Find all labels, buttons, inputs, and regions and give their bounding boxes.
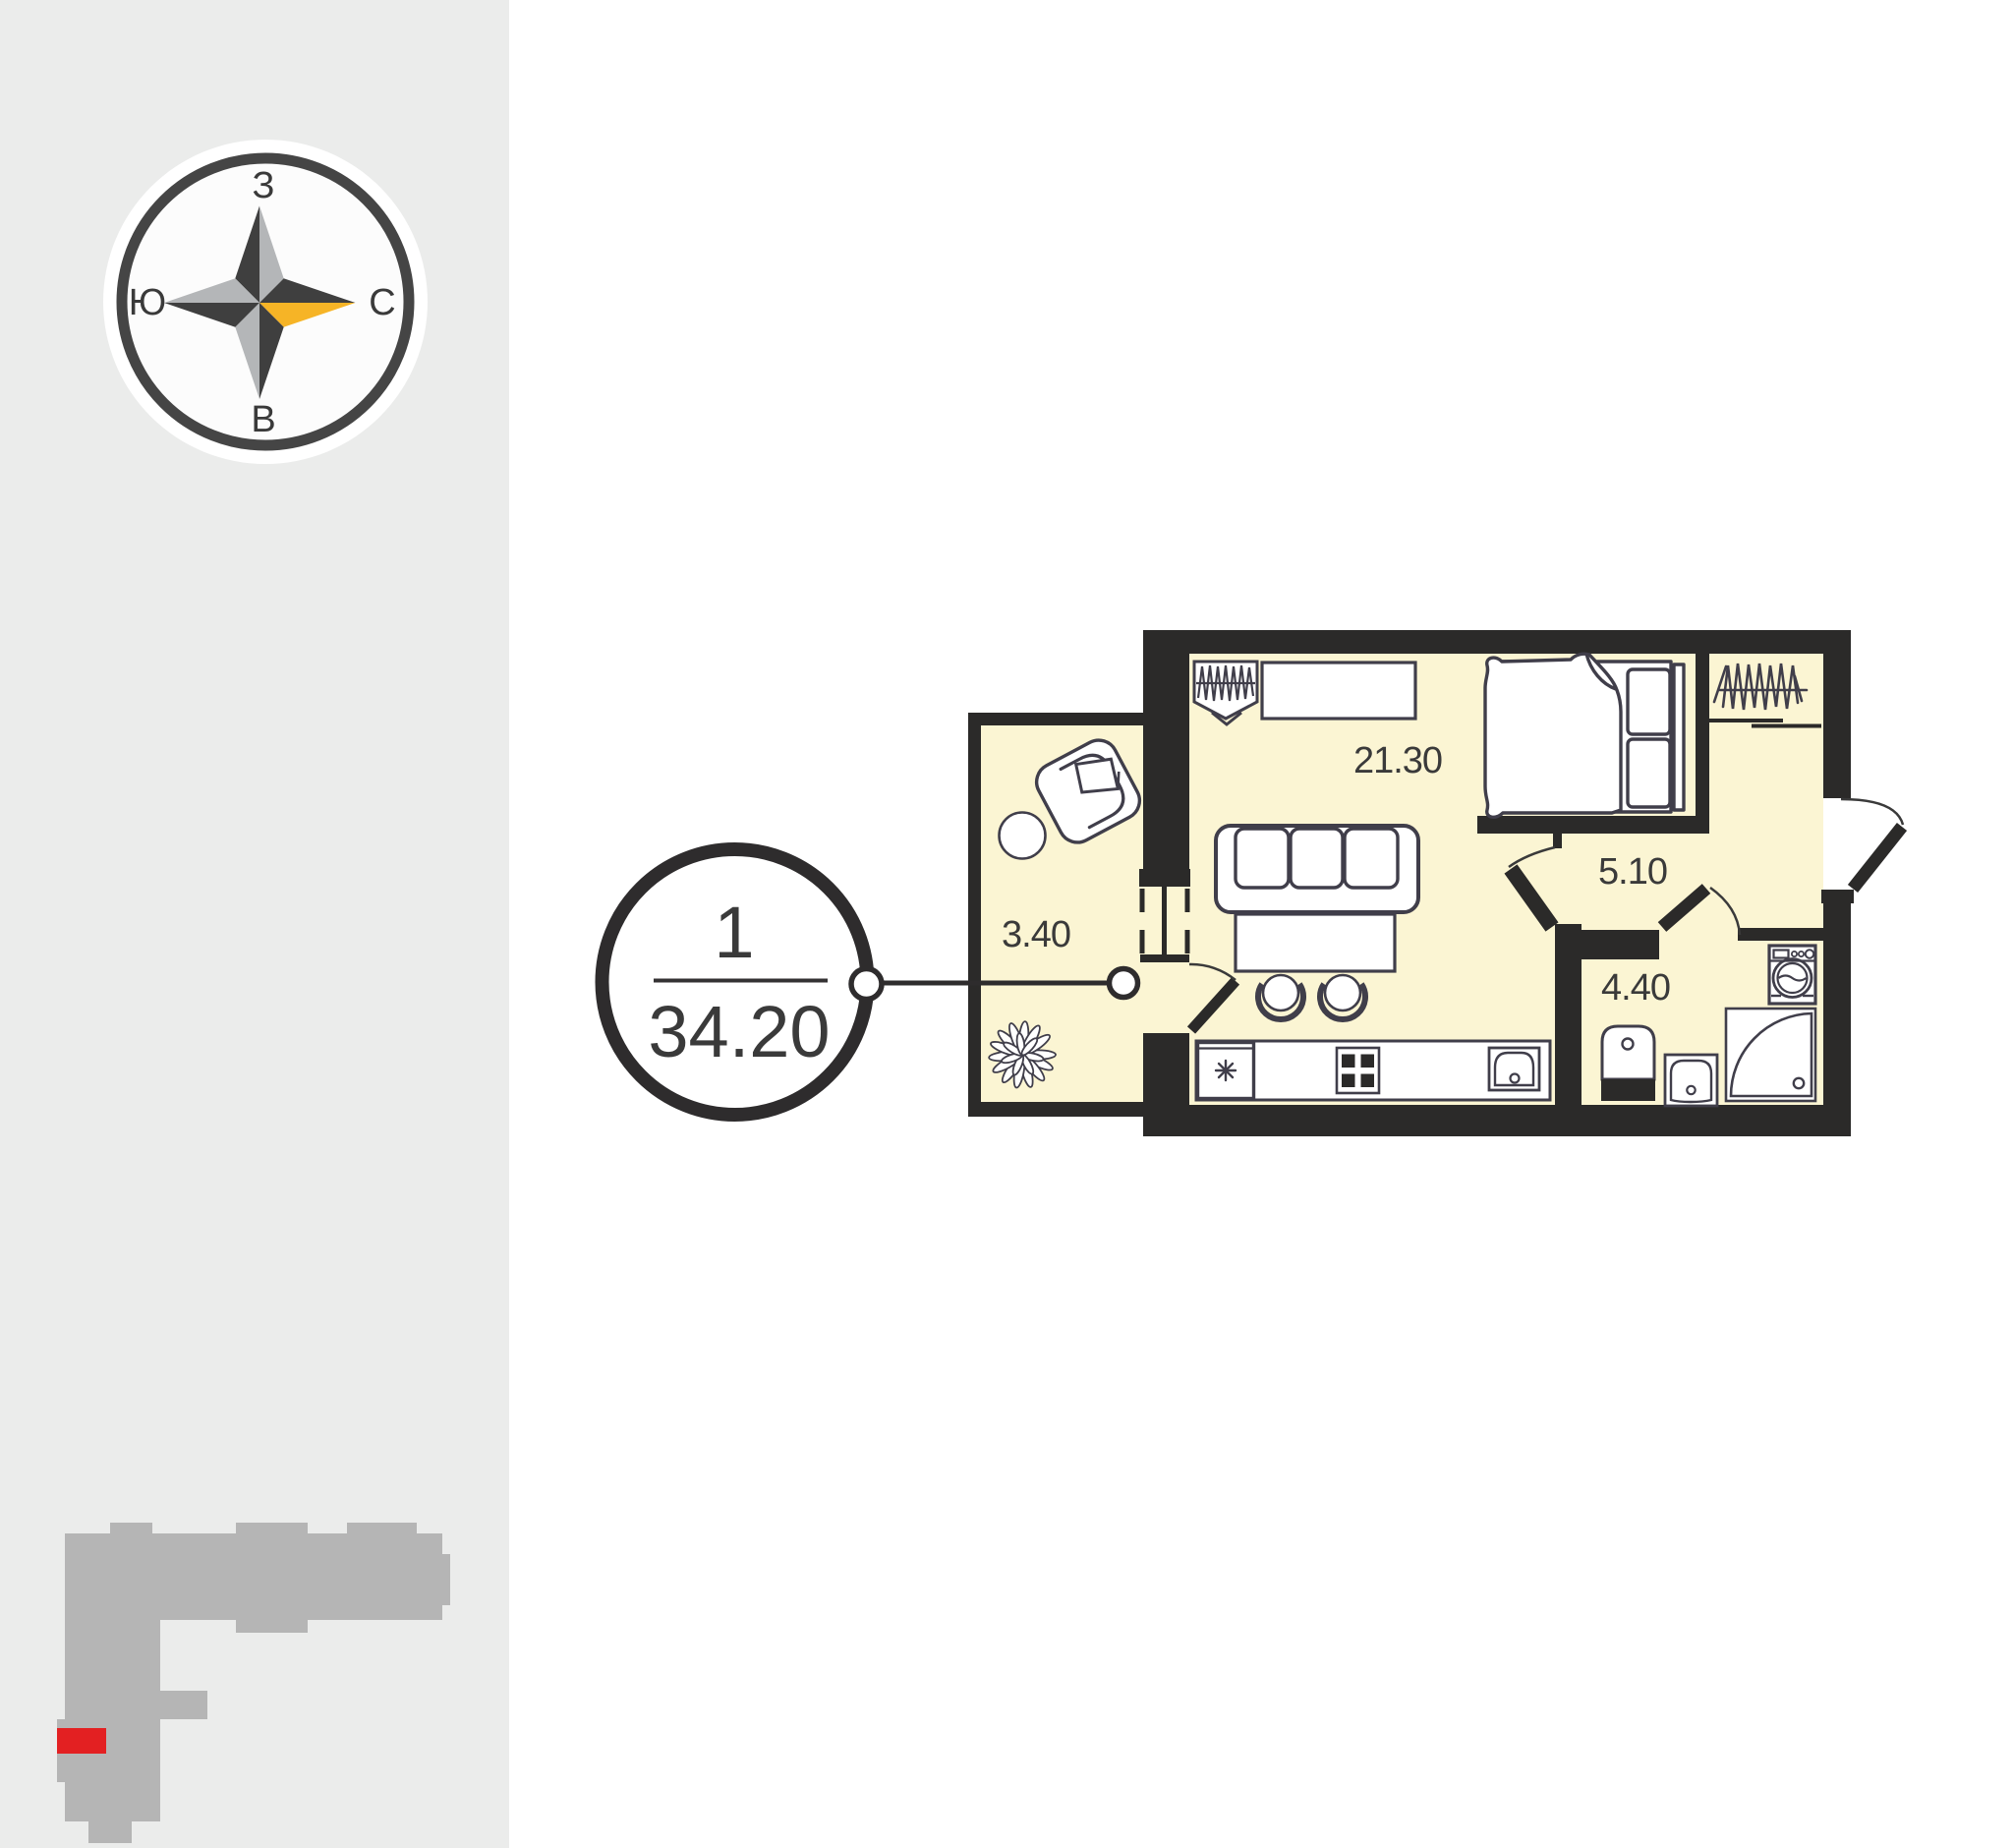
svg-text:3.40: 3.40 — [1002, 914, 1070, 955]
svg-text:В: В — [251, 399, 275, 440]
svg-text:5.10: 5.10 — [1598, 851, 1667, 893]
svg-text:Ю: Ю — [129, 282, 166, 323]
svg-text:4.40: 4.40 — [1601, 967, 1670, 1009]
svg-text:С: С — [369, 282, 395, 323]
svg-text:34.20: 34.20 — [648, 991, 830, 1072]
svg-text:1: 1 — [714, 892, 754, 973]
svg-text:З: З — [253, 165, 275, 206]
svg-text:21.30: 21.30 — [1353, 740, 1442, 781]
